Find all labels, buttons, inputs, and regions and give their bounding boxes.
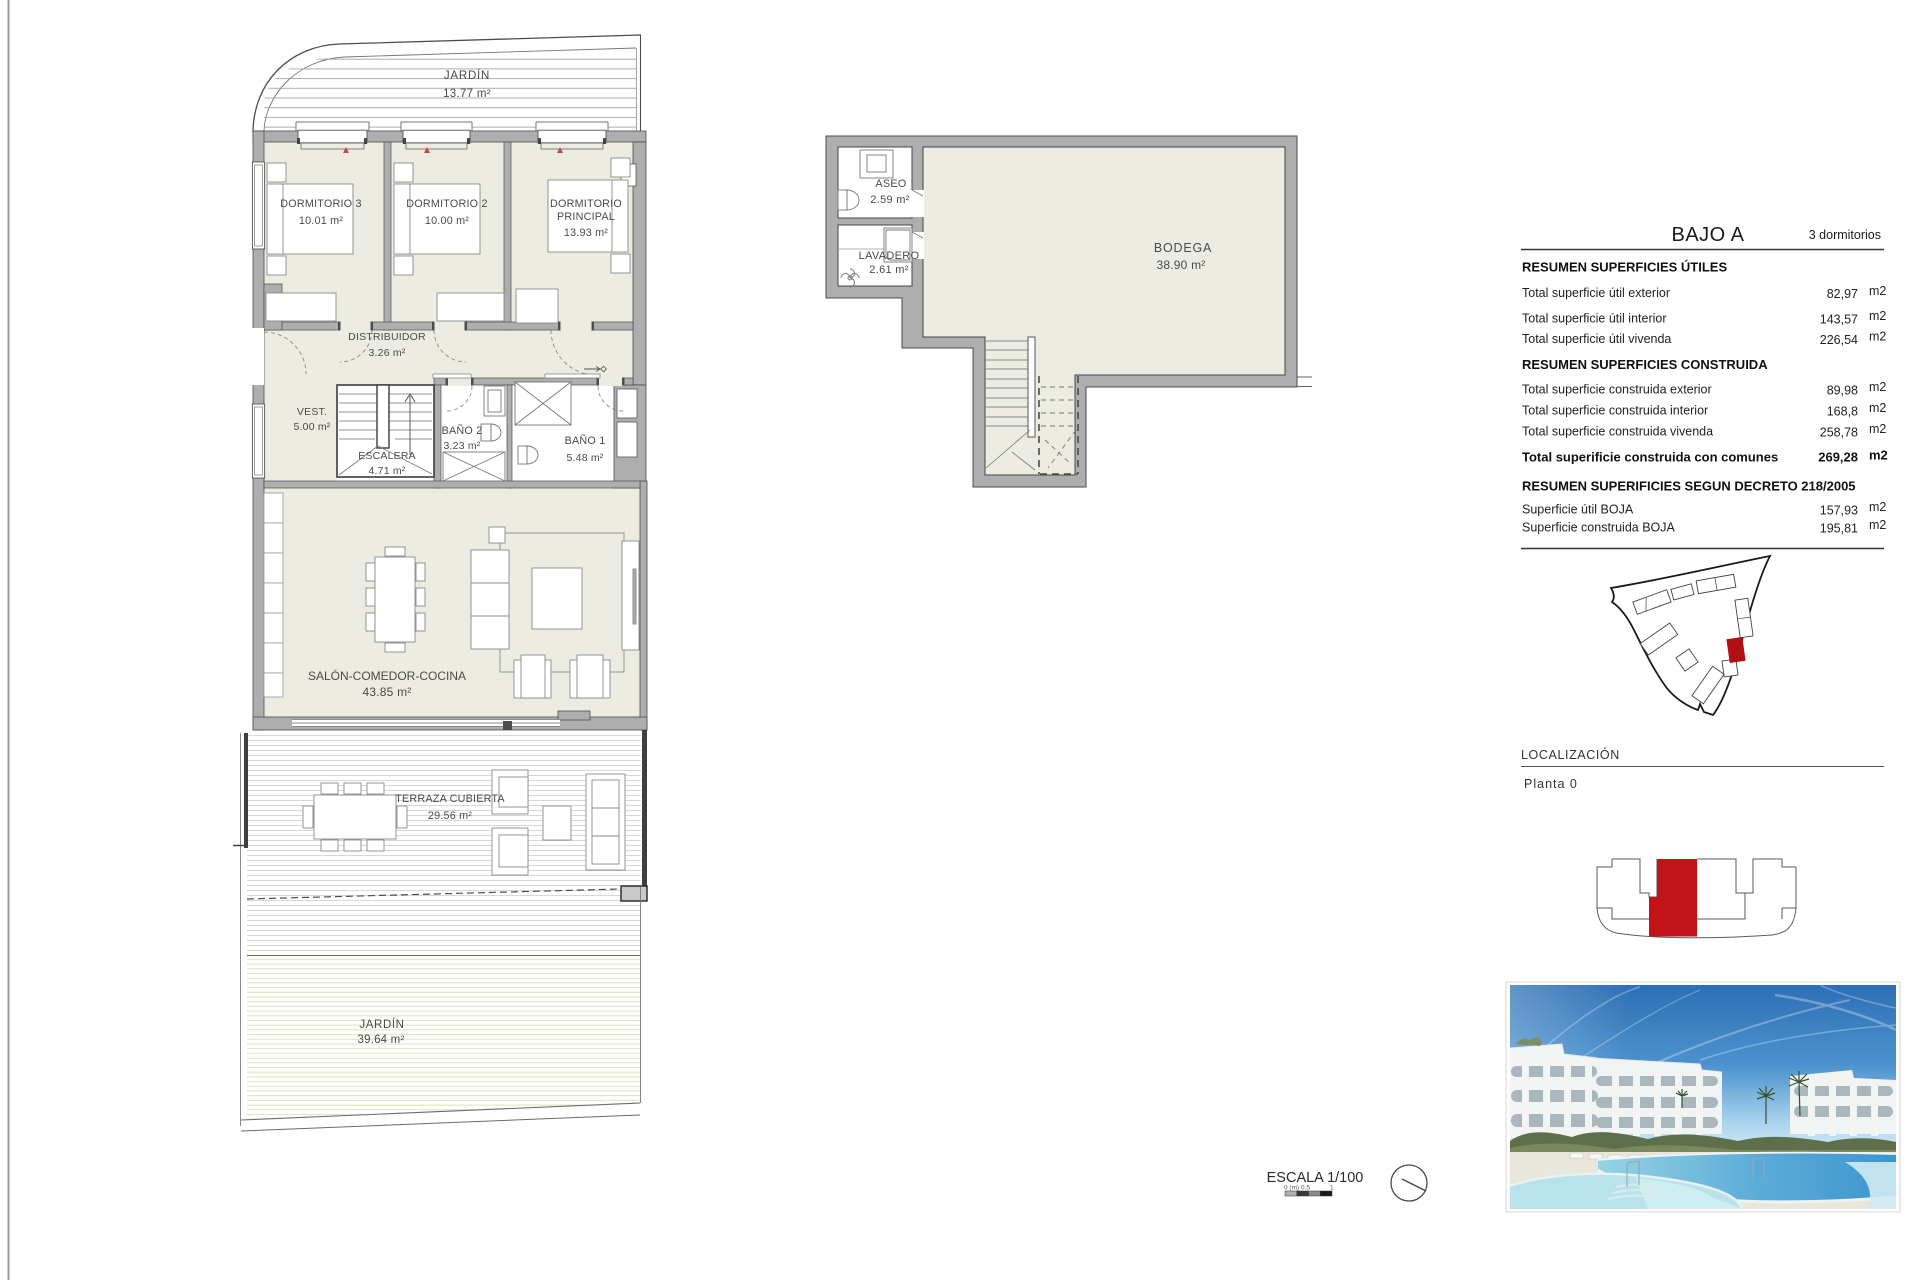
svg-text:4.71 m²: 4.71 m² [369, 465, 406, 477]
svg-text:DORMITORIO 2: DORMITORIO 2 [406, 198, 487, 210]
svg-text:10.00 m²: 10.00 m² [425, 215, 469, 227]
svg-text:m2: m2 [1869, 380, 1886, 394]
svg-text:Superficie construida BOJA: Superficie construida BOJA [1522, 521, 1676, 535]
svg-text:Total superficie construida vi: Total superficie construida vivenda [1522, 425, 1713, 439]
svg-text:DISTRIBUIDOR: DISTRIBUIDOR [348, 331, 426, 343]
svg-text:226,54: 226,54 [1820, 333, 1858, 347]
svg-text:m2: m2 [1869, 422, 1886, 436]
svg-text:2.61 m²: 2.61 m² [869, 264, 908, 276]
svg-text:5.00 m²: 5.00 m² [294, 421, 331, 433]
svg-text:RESUMEN SUPERFICIES ÚTILES: RESUMEN SUPERFICIES ÚTILES [1522, 260, 1727, 275]
svg-text:DORMITORIO: DORMITORIO [550, 198, 622, 210]
svg-text:VEST.: VEST. [297, 406, 327, 418]
svg-text:LAVADERO: LAVADERO [859, 250, 920, 262]
svg-text:10.01 m²: 10.01 m² [299, 215, 343, 227]
svg-text:0 (m) 0.5: 0 (m) 0.5 [1284, 1185, 1310, 1192]
svg-text:1: 1 [1330, 1185, 1334, 1192]
svg-text:m2: m2 [1869, 448, 1888, 463]
svg-text:Total superficie útil vivenda: Total superficie útil vivenda [1522, 332, 1671, 346]
svg-text:5.48 m²: 5.48 m² [567, 452, 604, 464]
svg-text:Total superificie construida c: Total superificie construida con comunes [1522, 450, 1778, 465]
svg-text:BAJO A: BAJO A [1671, 224, 1744, 246]
svg-text:TERRAZA CUBIERTA: TERRAZA CUBIERTA [395, 793, 505, 805]
svg-text:269,28: 269,28 [1818, 450, 1858, 465]
svg-text:157,93: 157,93 [1820, 504, 1858, 518]
svg-text:Total superficie construida ex: Total superficie construida exterior [1522, 383, 1712, 397]
svg-text:ASEO: ASEO [875, 178, 906, 190]
svg-text:39.64 m²: 39.64 m² [358, 1034, 405, 1046]
svg-text:ESCALERA: ESCALERA [358, 450, 416, 462]
svg-text:Total superficie útil interior: Total superficie útil interior [1522, 312, 1667, 326]
svg-text:RESUMEN SUPERFICIES CONSTRUIDA: RESUMEN SUPERFICIES CONSTRUIDA [1522, 357, 1768, 372]
svg-text:m2: m2 [1869, 284, 1886, 298]
svg-text:BODEGA: BODEGA [1154, 241, 1212, 255]
svg-text:143,57: 143,57 [1820, 313, 1858, 327]
svg-text:LOCALIZACIÓN: LOCALIZACIÓN [1521, 747, 1620, 762]
svg-text:m2: m2 [1869, 500, 1886, 514]
svg-text:BAÑO 1: BAÑO 1 [565, 434, 606, 447]
svg-text:BAÑO 2: BAÑO 2 [442, 424, 483, 437]
svg-text:13.93 m²: 13.93 m² [564, 227, 608, 239]
svg-text:Total superficie útil exterior: Total superficie útil exterior [1522, 286, 1670, 300]
svg-text:43.85 m²: 43.85 m² [363, 685, 412, 699]
svg-text:m2: m2 [1869, 401, 1886, 415]
svg-text:SALÓN-COMEDOR-COCINA: SALÓN-COMEDOR-COCINA [308, 668, 466, 683]
svg-text:RESUMEN SUPERIFICIES SEGUN DEC: RESUMEN SUPERIFICIES SEGUN DECRETO 218/2… [1522, 479, 1856, 494]
svg-text:13.77 m²: 13.77 m² [443, 88, 491, 100]
svg-text:82,97: 82,97 [1827, 287, 1858, 301]
svg-text:3 dormitorios: 3 dormitorios [1809, 228, 1881, 242]
svg-text:m2: m2 [1869, 309, 1886, 323]
svg-text:DORMITORIO 3: DORMITORIO 3 [280, 198, 361, 210]
svg-text:m2: m2 [1869, 518, 1886, 532]
svg-text:Superficie útil BOJA: Superficie útil BOJA [1522, 503, 1634, 517]
svg-text:89,98: 89,98 [1827, 384, 1858, 398]
svg-text:PRINCIPAL: PRINCIPAL [557, 211, 615, 223]
svg-text:JARDÍN: JARDÍN [444, 69, 490, 82]
svg-text:195,81: 195,81 [1820, 522, 1858, 536]
svg-text:Total superficie construida in: Total superficie construida interior [1522, 404, 1708, 418]
svg-text:3.23 m²: 3.23 m² [444, 440, 481, 452]
svg-text:2.59 m²: 2.59 m² [870, 194, 909, 206]
svg-text:ESCALA 1/100: ESCALA 1/100 [1267, 1170, 1364, 1186]
svg-text:29.56 m²: 29.56 m² [428, 810, 472, 822]
svg-text:3.26 m²: 3.26 m² [369, 347, 406, 359]
svg-text:38.90 m²: 38.90 m² [1157, 258, 1206, 272]
svg-text:Planta 0: Planta 0 [1524, 777, 1578, 791]
svg-text:JARDÍN: JARDÍN [359, 1018, 404, 1031]
svg-text:258,78: 258,78 [1820, 426, 1858, 440]
svg-text:168,8: 168,8 [1827, 405, 1858, 419]
svg-text:m2: m2 [1869, 330, 1886, 344]
